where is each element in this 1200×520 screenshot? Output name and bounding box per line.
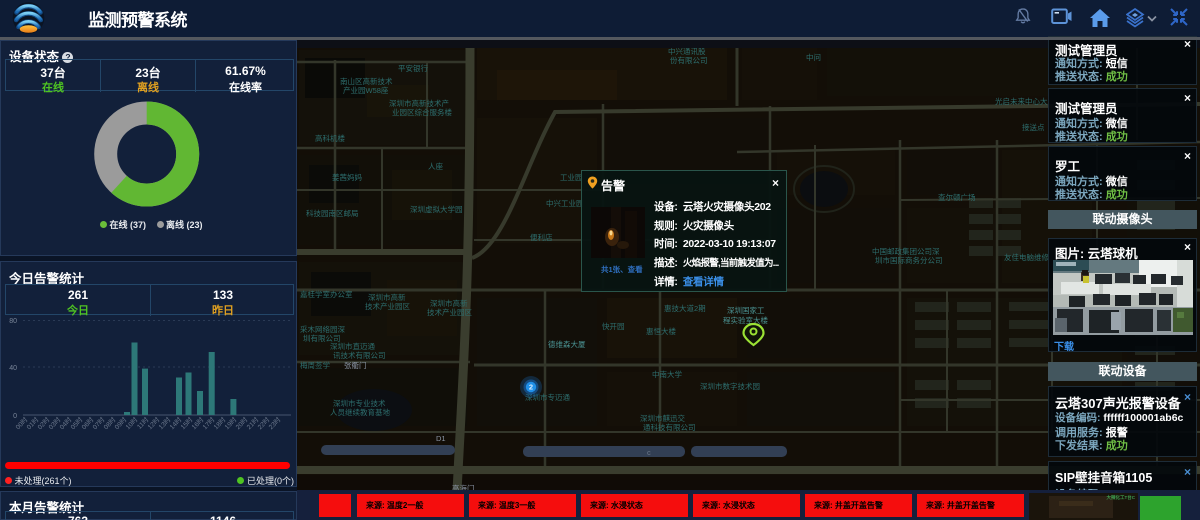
svg-text:深圳市高新: 深圳市高新 [430, 298, 468, 308]
svg-text:40: 40 [9, 365, 17, 372]
svg-text:中问: 中问 [806, 52, 821, 62]
svg-text:科技园南区邮局: 科技园南区邮局 [306, 208, 359, 218]
svg-text:c: c [647, 448, 651, 457]
svg-text:深圳市高新: 深圳市高新 [368, 292, 406, 302]
svg-text:嘉桂学室办公室: 嘉桂学室办公室 [300, 289, 353, 299]
svg-text:中国邮政集团公司深: 中国邮政集团公司深 [872, 246, 940, 256]
svg-text:工业园: 工业园 [560, 172, 583, 182]
svg-text:深圳虚拟大学园: 深圳虚拟大学园 [410, 204, 463, 214]
svg-text:深圳国家工: 深圳国家工 [727, 305, 765, 315]
svg-text:梅周莶学: 梅周莶学 [300, 360, 330, 370]
svg-text:中南大学: 中南大学 [652, 369, 682, 379]
svg-text:查尔顿广场: 查尔顿广场 [938, 192, 976, 202]
svg-text:惠恒大楼: 惠恒大楼 [646, 326, 676, 336]
svg-text:D1: D1 [436, 434, 446, 443]
svg-text:中兴工业园: 中兴工业园 [546, 198, 584, 208]
svg-text:深圳市直迈通: 深圳市直迈通 [330, 341, 375, 351]
svg-text:光启未来中心大: 光启未来中心大 [995, 96, 1048, 106]
svg-text:程实验室大楼: 程实验室大楼 [723, 315, 768, 325]
svg-text:0: 0 [13, 413, 17, 420]
svg-text:深圳市麒迅交: 深圳市麒迅交 [640, 413, 685, 423]
svg-text:德维森大厦: 德维森大厦 [548, 339, 586, 349]
svg-text:技术产业园区: 技术产业园区 [365, 301, 410, 311]
svg-text:采木网络园深: 采木网络园深 [300, 324, 345, 334]
svg-text:产业园W58座: 产业园W58座 [343, 85, 389, 95]
svg-text:技术产业园区: 技术产业园区 [427, 307, 472, 317]
svg-text:讯技术有限公司: 讯技术有限公司 [333, 350, 386, 360]
svg-text:平安银行: 平安银行 [398, 63, 428, 73]
svg-text:便利店: 便利店 [530, 232, 553, 242]
svg-text:深圳市高新技术产: 深圳市高新技术产 [389, 98, 449, 108]
svg-text:深圳市数字技术园: 深圳市数字技术园 [700, 381, 760, 391]
svg-text:友佳电脑维修: 友佳电脑维修 [1004, 252, 1049, 262]
svg-text:份有限公司: 份有限公司 [670, 55, 708, 65]
svg-text:人员继续教育基地: 人员继续教育基地 [330, 407, 390, 417]
svg-text:张衢门: 张衢门 [344, 360, 367, 370]
svg-text:80: 80 [9, 318, 17, 325]
svg-text:南山区高新技术: 南山区高新技术 [340, 76, 393, 86]
svg-text:通科技有限公司: 通科技有限公司 [643, 422, 696, 432]
svg-text:圳市国际商务分公司: 圳市国际商务分公司 [875, 255, 943, 265]
svg-text:接送点: 接送点 [1022, 122, 1045, 132]
svg-text:人座: 人座 [428, 161, 443, 171]
svg-text:业园区综合服务楼: 业园区综合服务楼 [392, 107, 452, 117]
svg-text:惠技大道2期: 惠技大道2期 [664, 303, 706, 313]
svg-text:高科机楼: 高科机楼 [315, 133, 345, 143]
svg-text:姜茜妈妈: 姜茜妈妈 [332, 172, 362, 182]
svg-text:快开园: 快开园 [602, 321, 625, 331]
svg-text:深圳市专业技术: 深圳市专业技术 [333, 398, 386, 408]
svg-text:2: 2 [529, 383, 533, 392]
